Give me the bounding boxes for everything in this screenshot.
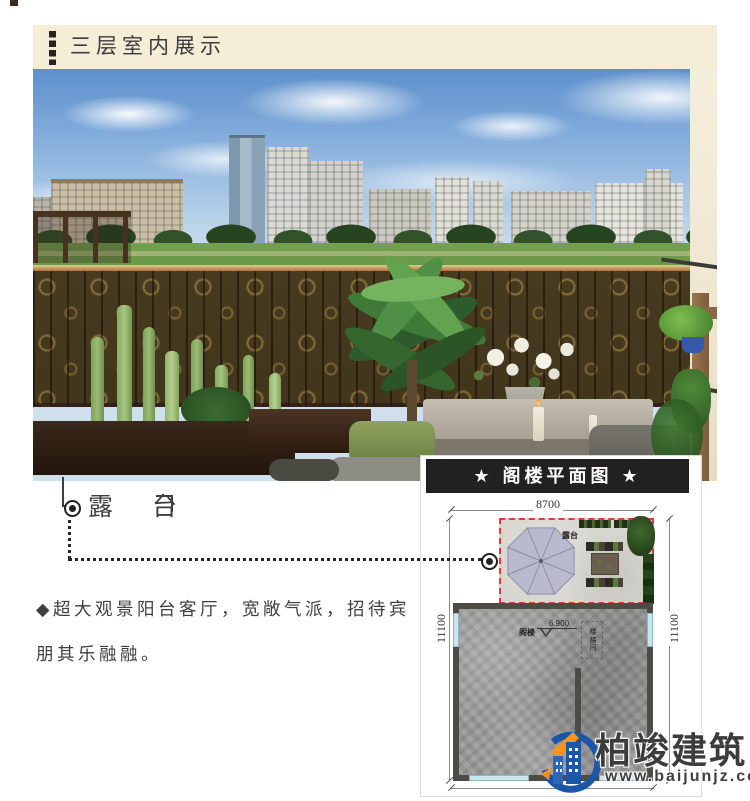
flower-arrangement xyxy=(463,325,593,397)
potted-plant xyxy=(659,305,713,341)
dimension-tick xyxy=(650,506,657,513)
description-line: ◆超大观景阳台客厅，宽敞气派，招待宾 xyxy=(36,596,436,622)
park-pergola xyxy=(33,211,131,263)
blue-flower-pot xyxy=(682,337,704,353)
plan-seat-row xyxy=(586,578,623,587)
dimension-tick xyxy=(446,777,453,784)
dimension-value-left: 11100 xyxy=(434,611,449,646)
callout-bracket-right-vertical xyxy=(171,495,173,512)
pouf-cushion-grey xyxy=(329,457,427,481)
candle-flame xyxy=(536,399,541,406)
description-line: 朋其乐融融。 xyxy=(36,641,436,667)
plan-corner-plant xyxy=(627,516,655,556)
callout-bracket-left-vertical xyxy=(62,477,64,507)
leader-line-vertical xyxy=(68,513,71,559)
floor-cushion xyxy=(269,459,339,481)
callout-label: 露 台 xyxy=(88,487,193,523)
cactus xyxy=(91,337,104,433)
logo-website-url: www.baijunjz.com xyxy=(605,768,750,786)
level-marker-triangle-inner xyxy=(542,629,550,635)
plan-table xyxy=(591,553,619,575)
description-paragraph: ◆超大观景阳台客厅，宽敞气派，招待宾 朋其乐融融。 xyxy=(36,596,436,686)
logo-watermark: 柏竣建筑 www.baijunjz.com xyxy=(535,718,750,800)
cactus xyxy=(143,327,155,433)
floorplan-title: ★ 阁楼平面图 ★ xyxy=(426,459,689,493)
cactus xyxy=(117,305,132,433)
crop-corner-mark xyxy=(10,0,18,6)
window xyxy=(453,613,459,647)
section-header: 三层室内展示 xyxy=(33,25,717,69)
attic-label: 阁楼 xyxy=(519,628,535,637)
logo-company-name: 柏竣建筑 xyxy=(595,722,747,774)
plan-edge-plant xyxy=(643,554,654,604)
leader-line-horizontal xyxy=(68,558,482,561)
window xyxy=(469,775,529,781)
terrace-photo xyxy=(33,69,717,481)
dimension-value-right: 11100 xyxy=(667,611,682,646)
stairwell-box: 楼梯间 xyxy=(581,621,603,659)
terrace-plan-label: 露台 xyxy=(562,531,578,540)
plan-bench xyxy=(579,520,611,528)
window xyxy=(647,613,653,647)
leader-start-marker xyxy=(64,500,81,517)
page: 三层室内展示 xyxy=(0,0,750,801)
dashed-bar-icon xyxy=(49,31,56,65)
level-value: 6.900 xyxy=(549,619,569,628)
candle xyxy=(533,407,544,441)
stairwell-label: 楼梯间 xyxy=(587,628,597,652)
leader-end-marker xyxy=(481,553,498,570)
dimension-value-top: 8700 xyxy=(533,497,563,512)
plan-seat-row xyxy=(586,542,623,551)
page-title: 三层室内展示 xyxy=(70,25,226,69)
